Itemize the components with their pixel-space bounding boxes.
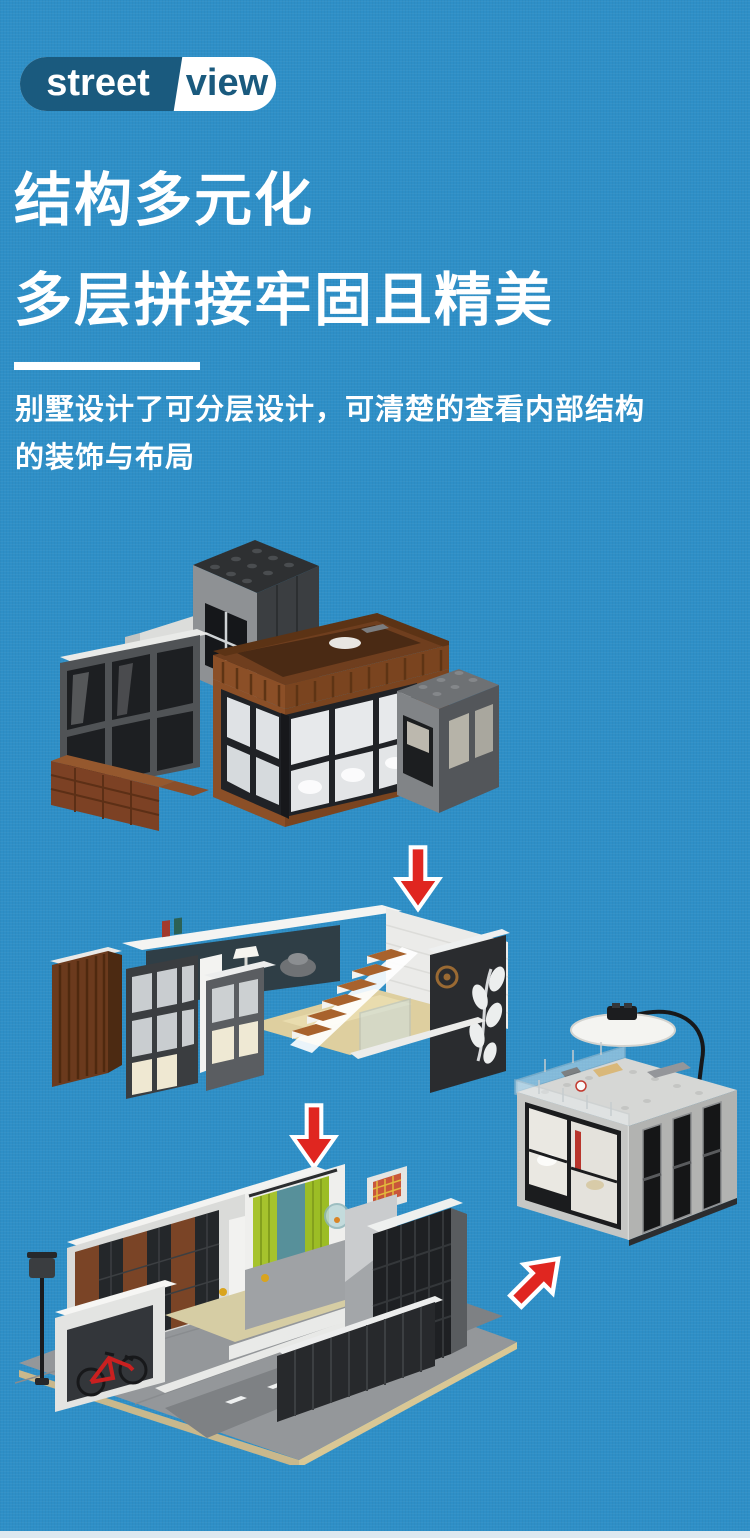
divider-line — [14, 362, 200, 370]
promo-page: street view 结构多元化 多层拼接牢固且精美 别墅设计了可分层设计，可… — [0, 0, 750, 1538]
villa-exterior-photo — [45, 525, 500, 845]
brown-slat-box — [50, 947, 122, 1087]
bottom-strip — [0, 1531, 750, 1538]
description-line-1: 别墅设计了可分层设计，可清楚的查看内部结构 — [15, 386, 645, 434]
headline-line1: 结构多元化 — [14, 153, 314, 237]
headline-line2: 多层拼接牢固且精美 — [14, 253, 554, 337]
dark-end-tower — [428, 929, 510, 1093]
street-view-logo-badge: street view — [20, 57, 276, 111]
window-grid-panel — [126, 955, 198, 1099]
right-gray-module — [397, 669, 499, 813]
upper-floor-interior-photo — [50, 903, 510, 1105]
description-paragraph: 别墅设计了可分层设计，可清楚的查看内部结构 的装饰与布局 — [15, 386, 645, 482]
ground-floor-interior-photo — [15, 1150, 520, 1465]
room-module-photo — [505, 1000, 745, 1250]
logo-street-label: street — [22, 57, 174, 111]
description-line-2: 的装饰与布局 — [15, 434, 645, 482]
logo-view-label: view — [178, 57, 276, 111]
up-right-arrow-icon — [500, 1243, 574, 1317]
